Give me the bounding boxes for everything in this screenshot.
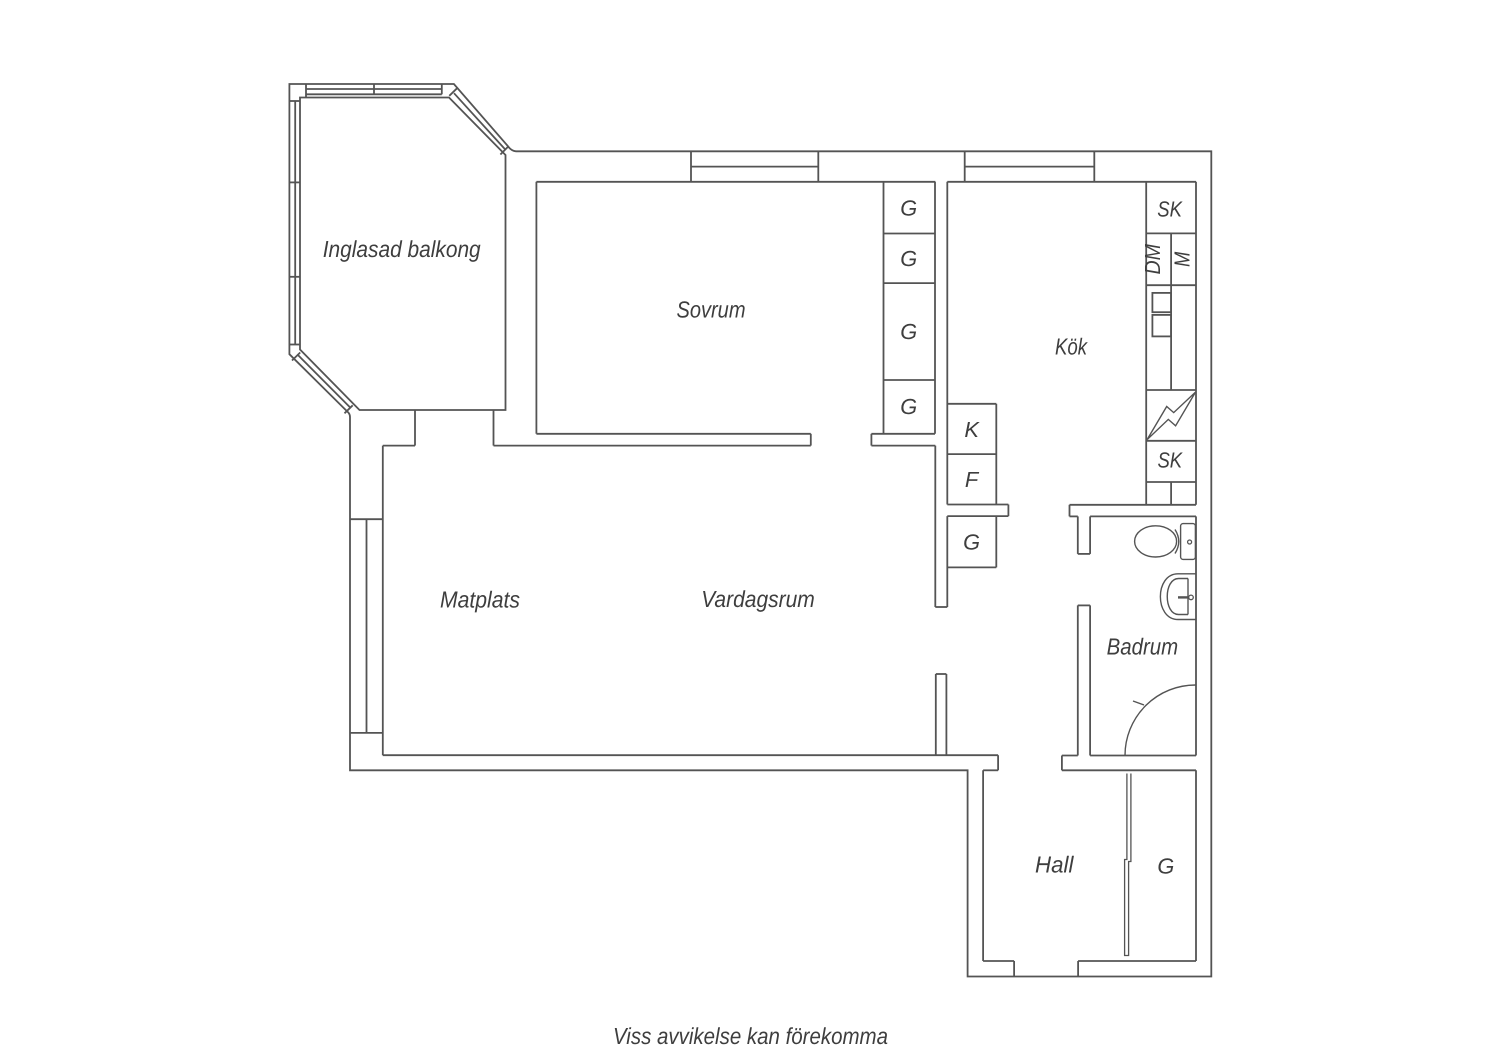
svg-text:K: K (964, 417, 980, 442)
svg-text:Matplats: Matplats (440, 586, 520, 612)
svg-text:G: G (900, 319, 917, 344)
svg-text:Hall: Hall (1035, 851, 1074, 877)
svg-text:Viss avvikelse kan förekomma: Viss avvikelse kan förekomma (613, 1023, 888, 1049)
svg-text:F: F (965, 467, 980, 492)
svg-text:Vardagsrum: Vardagsrum (701, 586, 815, 612)
svg-text:SK: SK (1157, 196, 1183, 221)
svg-text:G: G (1157, 853, 1174, 878)
svg-text:Kök: Kök (1055, 334, 1088, 360)
svg-text:Badrum: Badrum (1107, 633, 1179, 659)
svg-text:Sovrum: Sovrum (677, 297, 746, 323)
svg-text:G: G (900, 394, 917, 419)
svg-text:Inglasad balkong: Inglasad balkong (323, 236, 481, 262)
svg-text:G: G (900, 195, 917, 220)
svg-text:DM: DM (1140, 243, 1165, 274)
svg-text:SK: SK (1157, 447, 1183, 472)
svg-text:G: G (900, 246, 917, 271)
svg-text:M: M (1170, 251, 1195, 267)
svg-text:G: G (963, 530, 980, 555)
